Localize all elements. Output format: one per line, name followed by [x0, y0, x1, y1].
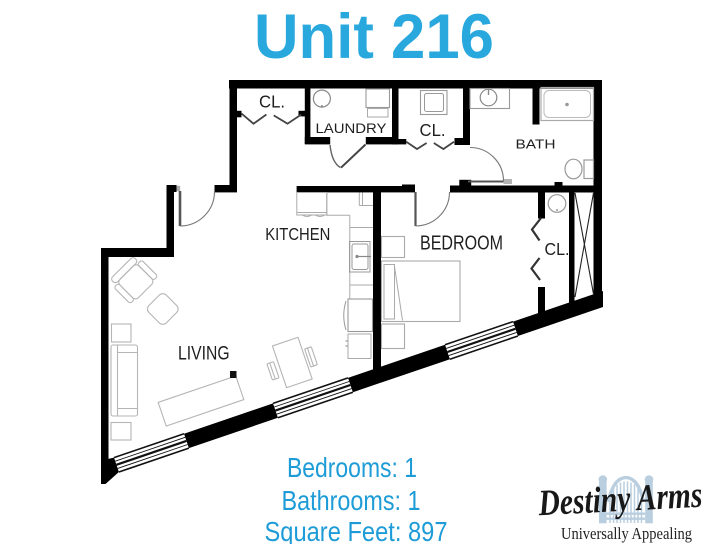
svg-text:KITCHEN: KITCHEN — [265, 224, 330, 244]
svg-text:Destiny Arms: Destiny Arms — [537, 475, 704, 525]
svg-text:LAUNDRY: LAUNDRY — [316, 121, 387, 136]
svg-text:BATH: BATH — [516, 137, 556, 152]
svg-text:BEDROOM: BEDROOM — [420, 232, 503, 255]
svg-text:Universally Appealing: Universally Appealing — [561, 524, 692, 543]
svg-text:Square Feet: 897: Square Feet: 897 — [265, 516, 448, 544]
svg-text:CL.: CL. — [545, 239, 570, 259]
svg-text:LIVING: LIVING — [178, 343, 230, 365]
svg-text:CL.: CL. — [259, 92, 285, 112]
svg-text:Bedrooms: 1: Bedrooms: 1 — [287, 452, 417, 483]
svg-text:CL.: CL. — [420, 120, 446, 140]
svg-text:Bathrooms: 1: Bathrooms: 1 — [282, 485, 421, 516]
svg-text:Unit 216: Unit 216 — [254, 2, 494, 72]
